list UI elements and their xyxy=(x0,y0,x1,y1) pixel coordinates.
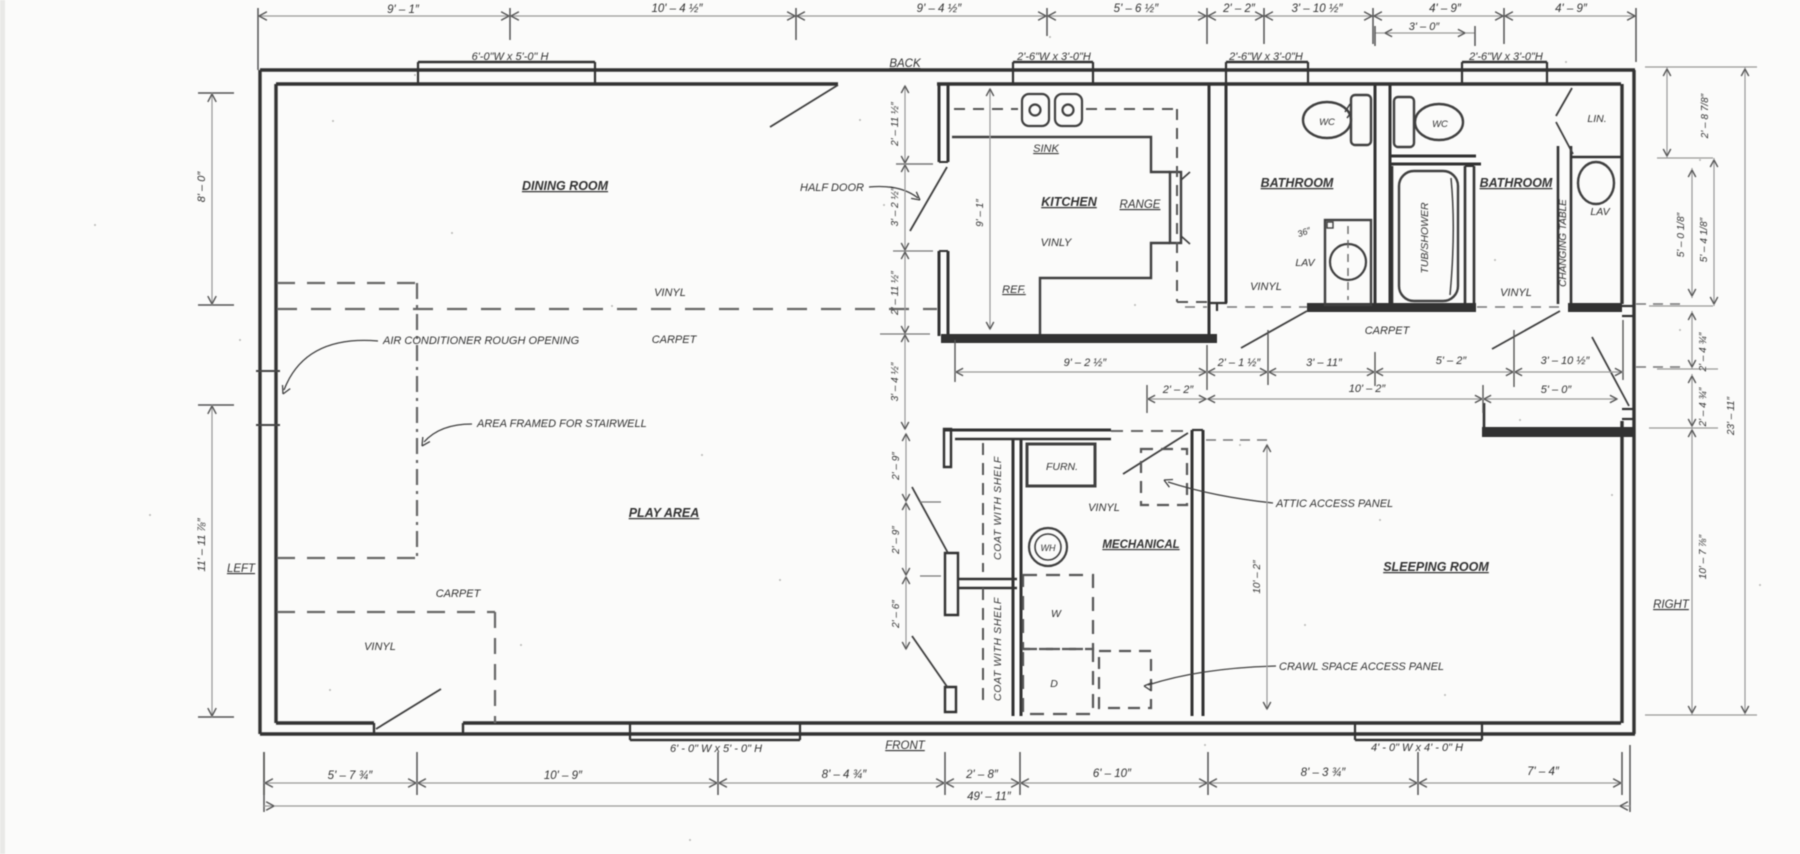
svg-text:2'-6"W x 3'-0"H: 2'-6"W x 3'-0"H xyxy=(1016,51,1091,63)
svg-text:4' – 9″: 4' – 9″ xyxy=(1555,3,1588,15)
svg-text:PLAY AREA: PLAY AREA xyxy=(629,506,700,520)
svg-text:2' – 4 ¾″: 2' – 4 ¾″ xyxy=(1698,387,1709,427)
svg-text:2'-6"W x 3'-0"H: 2'-6"W x 3'-0"H xyxy=(1468,51,1543,63)
svg-text:COAT WITH SHELF: COAT WITH SHELF xyxy=(992,456,1004,560)
svg-text:FRONT: FRONT xyxy=(885,740,926,752)
svg-text:LAV: LAV xyxy=(1590,206,1610,218)
svg-text:VINYL: VINYL xyxy=(654,287,686,299)
svg-text:5' – 6 ½″: 5' – 6 ½″ xyxy=(1114,3,1160,15)
svg-text:5' – 7 ¾″: 5' – 7 ¾″ xyxy=(328,770,374,782)
svg-text:8' – 0″: 8' – 0″ xyxy=(196,171,208,203)
svg-text:2' – 6″: 2' – 6″ xyxy=(891,600,902,629)
svg-text:WC: WC xyxy=(1319,117,1335,128)
svg-text:CARPET: CARPET xyxy=(436,588,482,600)
svg-text:3' – 0″: 3' – 0″ xyxy=(1409,21,1441,33)
svg-text:2' – 4 ¾″: 2' – 4 ¾″ xyxy=(1698,332,1709,372)
svg-text:49' – 11″: 49' – 11″ xyxy=(967,791,1012,803)
svg-text:WC: WC xyxy=(1432,119,1448,130)
svg-text:3' – 2 ½″: 3' – 2 ½″ xyxy=(890,187,901,226)
svg-text:VINYL: VINYL xyxy=(1500,287,1532,299)
svg-text:FURN.: FURN. xyxy=(1046,461,1078,473)
svg-text:8' – 4 ¾″: 8' – 4 ¾″ xyxy=(822,769,868,781)
svg-text:BACK: BACK xyxy=(889,58,922,70)
svg-text:SINK: SINK xyxy=(1033,143,1059,155)
svg-text:4' – 9″: 4' – 9″ xyxy=(1429,3,1462,15)
svg-text:RIGHT: RIGHT xyxy=(1653,599,1690,611)
svg-text:5' – 0″: 5' – 0″ xyxy=(1541,384,1573,396)
svg-text:6'-0"W x 5'-0" H: 6'-0"W x 5'-0" H xyxy=(472,51,549,63)
svg-text:2' – 1 ½″: 2' – 1 ½″ xyxy=(1217,357,1262,369)
svg-text:2' – 9″: 2' – 9″ xyxy=(891,452,902,481)
svg-text:BATHROOM: BATHROOM xyxy=(1480,176,1553,190)
svg-text:TUB/SHOWER: TUB/SHOWER xyxy=(1419,202,1431,274)
svg-text:SLEEPING ROOM: SLEEPING ROOM xyxy=(1383,560,1489,574)
svg-text:VINYL: VINYL xyxy=(1250,281,1282,293)
svg-text:3' – 11″: 3' – 11″ xyxy=(1306,357,1343,369)
svg-text:RANGE: RANGE xyxy=(1120,199,1161,211)
svg-text:2' – 2″: 2' – 2″ xyxy=(1222,3,1256,15)
svg-text:5' – 4 1/8″: 5' – 4 1/8″ xyxy=(1699,217,1710,262)
svg-text:2'-6"W x 3'-0"H: 2'-6"W x 3'-0"H xyxy=(1228,51,1303,63)
svg-text:8' – 3 ¾″: 8' – 3 ¾″ xyxy=(1301,767,1347,779)
svg-text:11' – 11 ⅞″: 11' – 11 ⅞″ xyxy=(196,517,208,571)
svg-text:6' - 0" W x 5' - 0" H: 6' - 0" W x 5' - 0" H xyxy=(670,743,762,755)
svg-text:DINING ROOM: DINING ROOM xyxy=(522,179,609,193)
svg-text:BATHROOM: BATHROOM xyxy=(1261,176,1334,190)
svg-text:5' – 2″: 5' – 2″ xyxy=(1436,355,1468,367)
svg-text:10' – 2″: 10' – 2″ xyxy=(1349,383,1387,395)
svg-text:2' – 11 ½″: 2' – 11 ½″ xyxy=(890,102,901,147)
svg-text:2' – 8 7/8″: 2' – 8 7/8″ xyxy=(1700,93,1711,139)
svg-text:W: W xyxy=(1051,608,1062,620)
svg-text:HALF DOOR: HALF DOOR xyxy=(800,182,864,194)
svg-text:LIN.: LIN. xyxy=(1587,113,1606,125)
svg-text:REF.: REF. xyxy=(1002,284,1026,296)
svg-text:3' – 4 ½″: 3' – 4 ½″ xyxy=(890,362,901,401)
svg-text:AIR CONDITIONER ROUGH OPENING: AIR CONDITIONER ROUGH OPENING xyxy=(382,335,580,347)
svg-text:MECHANICAL: MECHANICAL xyxy=(1102,539,1179,551)
svg-text:D: D xyxy=(1050,678,1058,690)
svg-text:10' – 4 ½″: 10' – 4 ½″ xyxy=(651,3,703,15)
svg-text:CARPET: CARPET xyxy=(652,334,698,346)
svg-text:VINYL: VINYL xyxy=(364,641,396,653)
svg-text:9' – 4 ½″: 9' – 4 ½″ xyxy=(917,3,963,15)
svg-text:2' – 9″: 2' – 9″ xyxy=(891,526,902,555)
svg-text:VINLY: VINLY xyxy=(1041,237,1072,249)
svg-text:3' – 10 ½″: 3' – 10 ½″ xyxy=(1291,3,1343,15)
svg-text:10' – 7 ⅞″: 10' – 7 ⅞″ xyxy=(1698,534,1709,579)
svg-text:4' - 0" W x 4' - 0" H: 4' - 0" W x 4' - 0" H xyxy=(1371,742,1463,754)
svg-text:10' – 9″: 10' – 9″ xyxy=(544,770,583,782)
svg-text:CRAWL SPACE ACCESS PANEL: CRAWL SPACE ACCESS PANEL xyxy=(1279,661,1444,673)
svg-text:6' – 10″: 6' – 10″ xyxy=(1093,768,1132,780)
svg-text:LAV: LAV xyxy=(1295,257,1315,269)
svg-text:CHANGING TABLE: CHANGING TABLE xyxy=(1558,199,1569,287)
svg-text:VINYL: VINYL xyxy=(1088,502,1120,514)
svg-text:7' – 4″: 7' – 4″ xyxy=(1527,766,1560,778)
svg-text:23' – 11″: 23' – 11″ xyxy=(1726,397,1737,437)
svg-text:2' – 2″: 2' – 2″ xyxy=(1162,384,1195,396)
svg-text:LEFT: LEFT xyxy=(227,563,256,575)
svg-text:CARPET: CARPET xyxy=(1365,325,1411,337)
svg-text:5' – 0 1/8″: 5' – 0 1/8″ xyxy=(1676,212,1687,257)
svg-text:COAT WITH SHELF: COAT WITH SHELF xyxy=(992,597,1004,701)
svg-text:AREA FRAMED FOR STAIRWELL: AREA FRAMED FOR STAIRWELL xyxy=(476,418,647,430)
svg-text:3' – 10 ½″: 3' – 10 ½″ xyxy=(1541,355,1591,367)
svg-text:2' – 11 ½″: 2' – 11 ½″ xyxy=(890,271,901,316)
svg-text:WH: WH xyxy=(1041,543,1056,553)
svg-text:9' – 1″: 9' – 1″ xyxy=(387,4,420,16)
svg-text:KITCHEN: KITCHEN xyxy=(1041,195,1098,209)
svg-text:9' – 1″: 9' – 1″ xyxy=(975,199,986,227)
svg-text:ATTIC ACCESS PANEL: ATTIC ACCESS PANEL xyxy=(1275,498,1393,510)
svg-text:10' – 2″: 10' – 2″ xyxy=(1252,560,1263,594)
svg-text:9' – 2 ½″: 9' – 2 ½″ xyxy=(1064,357,1108,369)
